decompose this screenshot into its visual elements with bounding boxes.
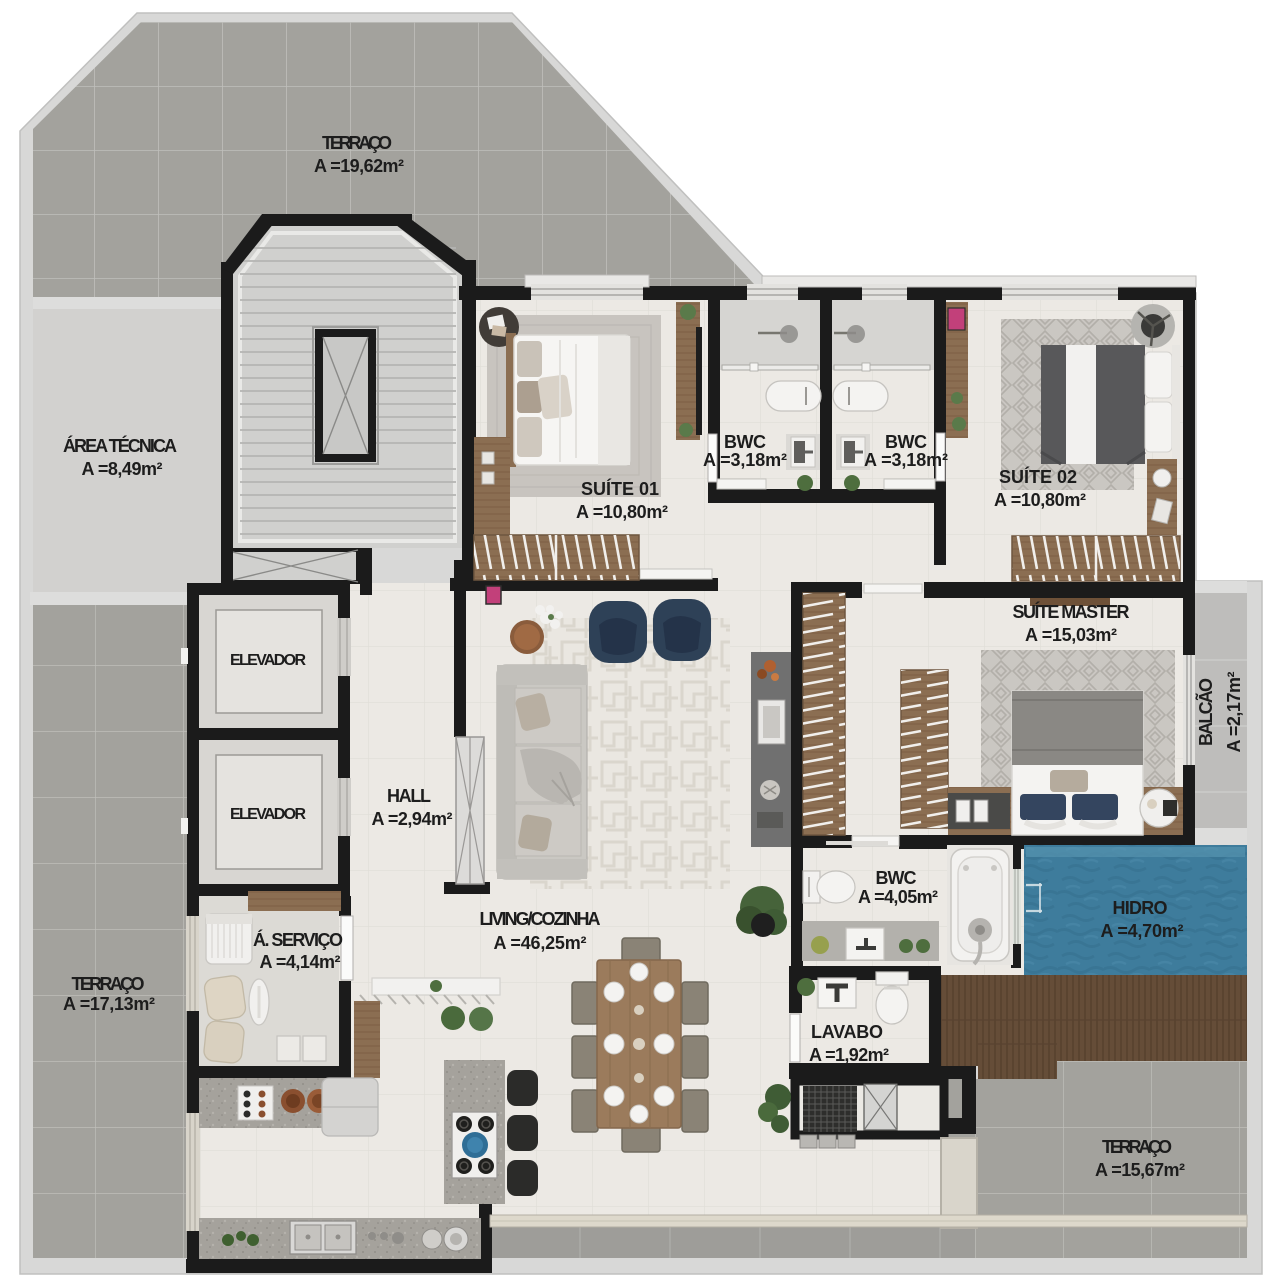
svg-text:ÁREA TÉCNICA: ÁREA TÉCNICA (63, 435, 177, 456)
svg-text:SUÍTE 02: SUÍTE 02 (999, 466, 1077, 487)
svg-text:BWC: BWC (885, 432, 927, 452)
svg-text:HALL: HALL (387, 786, 431, 806)
svg-text:HIDRO: HIDRO (1113, 898, 1168, 918)
svg-text:A =8,49m²: A =8,49m² (82, 459, 163, 479)
svg-text:Á. SERVIÇO: Á. SERVIÇO (253, 929, 343, 950)
svg-text:LIVING/COZINHA: LIVING/COZINHA (480, 909, 601, 929)
svg-text:A =17,13m²: A =17,13m² (63, 994, 155, 1014)
svg-text:SUÍTE MASTER: SUÍTE MASTER (1013, 601, 1130, 622)
svg-text:A =46,25m²: A =46,25m² (494, 933, 587, 953)
svg-text:TERRAÇO: TERRAÇO (322, 133, 392, 153)
svg-text:SUÍTE 01: SUÍTE 01 (581, 478, 659, 499)
svg-text:TERRAÇO: TERRAÇO (1102, 1137, 1172, 1157)
svg-text:A =19,62m²: A =19,62m² (314, 156, 404, 176)
svg-text:ELEVADOR: ELEVADOR (230, 652, 306, 669)
svg-text:A =15,67m²: A =15,67m² (1095, 1160, 1185, 1180)
svg-text:LAVABO: LAVABO (811, 1022, 883, 1042)
svg-text:A =2,94m²: A =2,94m² (372, 809, 453, 829)
svg-text:BALCÃO: BALCÃO (1195, 678, 1216, 746)
svg-text:BWC: BWC (724, 432, 766, 452)
svg-text:A =4,70m²: A =4,70m² (1101, 921, 1184, 941)
svg-text:A =1,92m²: A =1,92m² (809, 1045, 889, 1065)
svg-text:A =10,80m²: A =10,80m² (576, 502, 668, 522)
svg-text:A =4,14m²: A =4,14m² (260, 952, 341, 972)
svg-text:ELEVADOR: ELEVADOR (230, 806, 306, 823)
svg-text:A =15,03m²: A =15,03m² (1025, 625, 1117, 645)
svg-text:A =3,18m²: A =3,18m² (703, 450, 787, 470)
svg-text:BWC: BWC (876, 868, 917, 888)
svg-text:A =2,17m²: A =2,17m² (1224, 672, 1244, 753)
svg-text:A =4,05m²: A =4,05m² (858, 887, 938, 907)
svg-text:A =10,80m²: A =10,80m² (994, 490, 1086, 510)
svg-text:A =3,18m²: A =3,18m² (864, 450, 948, 470)
svg-text:TERRAÇO: TERRAÇO (72, 974, 145, 994)
